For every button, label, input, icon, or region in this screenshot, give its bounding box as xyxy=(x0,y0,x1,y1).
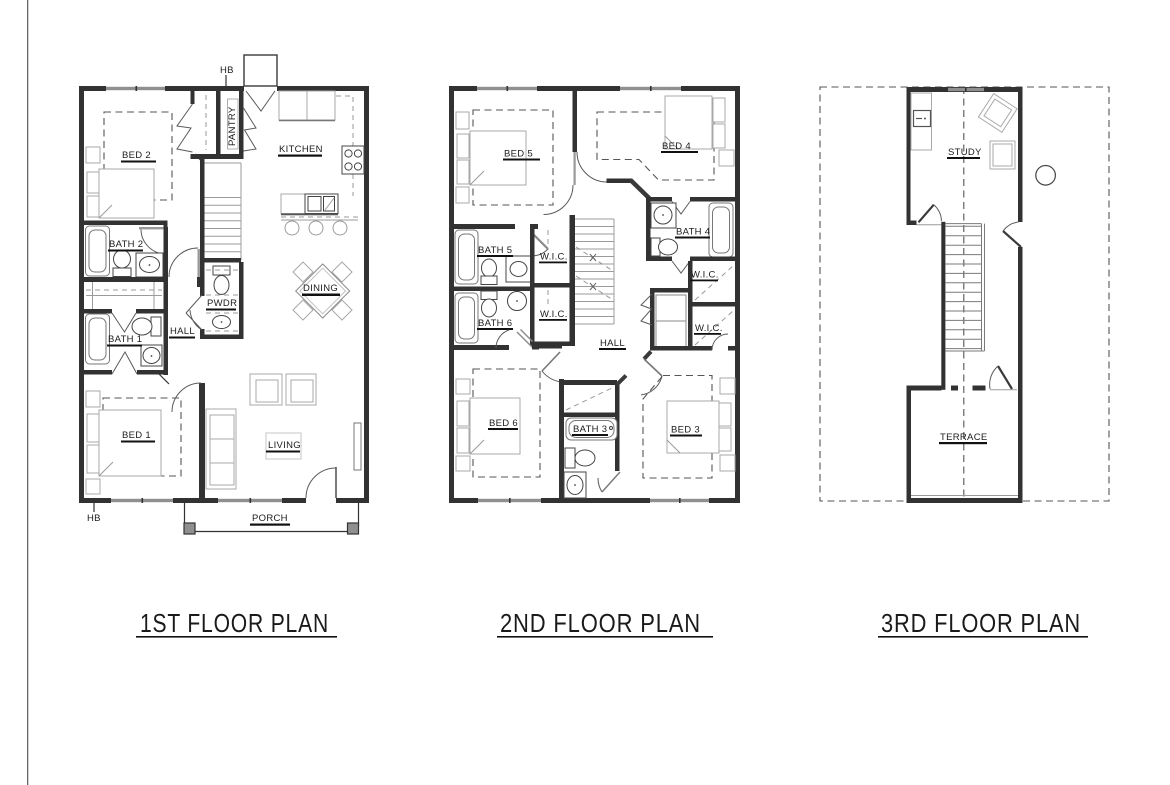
svg-text:BED 1: BED 1 xyxy=(122,430,151,441)
svg-text:HALL: HALL xyxy=(170,326,195,337)
svg-text:LIVING: LIVING xyxy=(268,440,301,451)
svg-text:DINING: DINING xyxy=(303,283,338,294)
svg-text:TERRACE: TERRACE xyxy=(940,432,988,443)
svg-text:W.I.C.: W.I.C. xyxy=(695,323,723,334)
svg-text:BATH 3: BATH 3 xyxy=(573,424,607,435)
svg-text:HALL: HALL xyxy=(600,338,625,349)
svg-text:BATH 2: BATH 2 xyxy=(109,239,143,250)
svg-text:BATH 4: BATH 4 xyxy=(676,227,710,238)
svg-text:BED 2: BED 2 xyxy=(122,150,151,161)
svg-text:BED 4: BED 4 xyxy=(662,141,691,152)
svg-text:PANTRY: PANTRY xyxy=(227,106,238,146)
svg-text:BED 6: BED 6 xyxy=(489,418,518,429)
svg-text:1ST FLOOR PLAN: 1ST FLOOR PLAN xyxy=(140,608,329,638)
svg-text:W.I.C.: W.I.C. xyxy=(691,270,719,281)
svg-text:KITCHEN: KITCHEN xyxy=(279,144,323,155)
svg-text:W.I.C.: W.I.C. xyxy=(540,309,568,320)
svg-text:W.I.C.: W.I.C. xyxy=(540,252,568,263)
svg-text:PWDR: PWDR xyxy=(207,298,237,309)
svg-text:BATH 6: BATH 6 xyxy=(478,318,512,329)
svg-text:2ND FLOOR PLAN: 2ND FLOOR PLAN xyxy=(500,608,701,638)
svg-text:BED 5: BED 5 xyxy=(504,149,533,160)
svg-text:BED 3: BED 3 xyxy=(671,425,700,436)
svg-text:HB: HB xyxy=(87,513,101,524)
svg-text:3RD FLOOR PLAN: 3RD FLOOR PLAN xyxy=(881,608,1081,638)
svg-text:BATH 1: BATH 1 xyxy=(108,334,142,345)
svg-text:BATH 5: BATH 5 xyxy=(478,245,512,256)
svg-text:HB: HB xyxy=(220,65,234,76)
svg-text:STUDY: STUDY xyxy=(948,147,982,158)
svg-text:PORCH: PORCH xyxy=(252,513,288,524)
